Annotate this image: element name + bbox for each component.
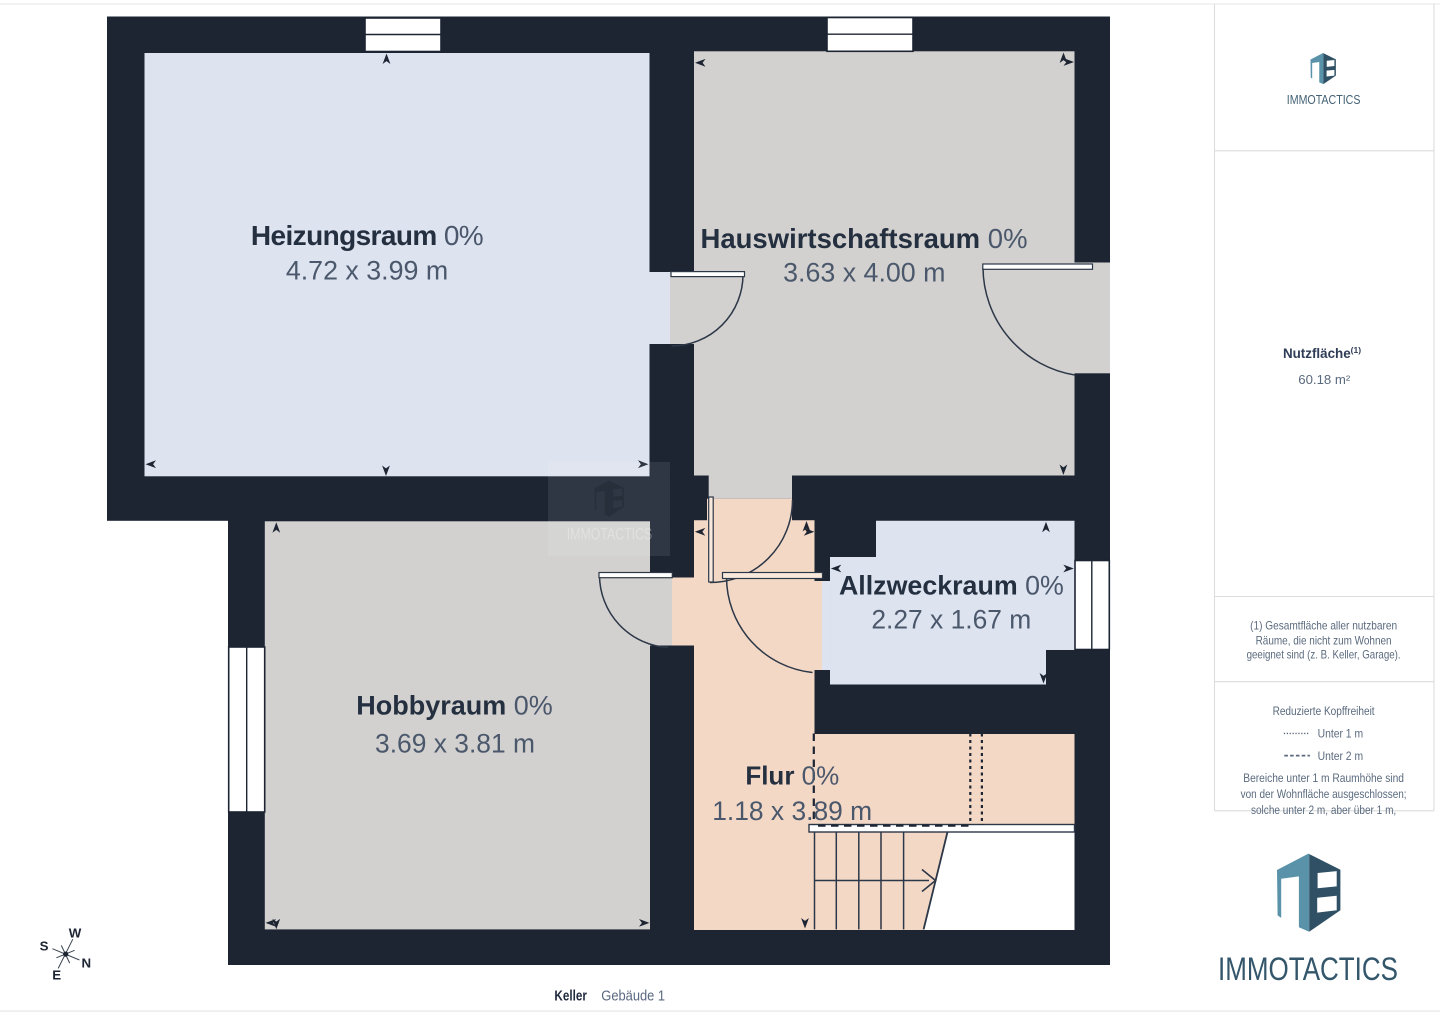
svg-text:(1) Gesamtfläche aller nutzbar: (1) Gesamtfläche aller nutzbaren <box>1250 619 1397 633</box>
svg-text:Räume, die nicht zum Wohnen: Räume, die nicht zum Wohnen <box>1256 634 1392 648</box>
svg-text:Unter 1 m: Unter 1 m <box>1318 727 1364 741</box>
svg-text:von der Wohnfläche ausgeschlos: von der Wohnfläche ausgeschlossen; <box>1241 787 1407 801</box>
svg-text:60.18 m²: 60.18 m² <box>1298 372 1351 387</box>
svg-text:geeignet sind (z. B. Keller, G: geeignet sind (z. B. Keller, Garage). <box>1247 648 1401 662</box>
svg-text:Bereiche unter 1 m Raumhöhe si: Bereiche unter 1 m Raumhöhe sind <box>1243 771 1404 785</box>
svg-text:Nutzfläche(1): Nutzfläche(1) <box>1283 345 1361 361</box>
svg-text:Reduzierte Kopffreiheit: Reduzierte Kopffreiheit <box>1273 704 1375 718</box>
svg-text:IMMOTACTICS: IMMOTACTICS <box>1218 951 1398 987</box>
svg-text:solche unter 2 m, aber über 1: solche unter 2 m, aber über 1 m, <box>1251 803 1396 817</box>
svg-text:Unter 2 m: Unter 2 m <box>1318 749 1364 763</box>
svg-text:IMMOTACTICS: IMMOTACTICS <box>1287 92 1361 107</box>
